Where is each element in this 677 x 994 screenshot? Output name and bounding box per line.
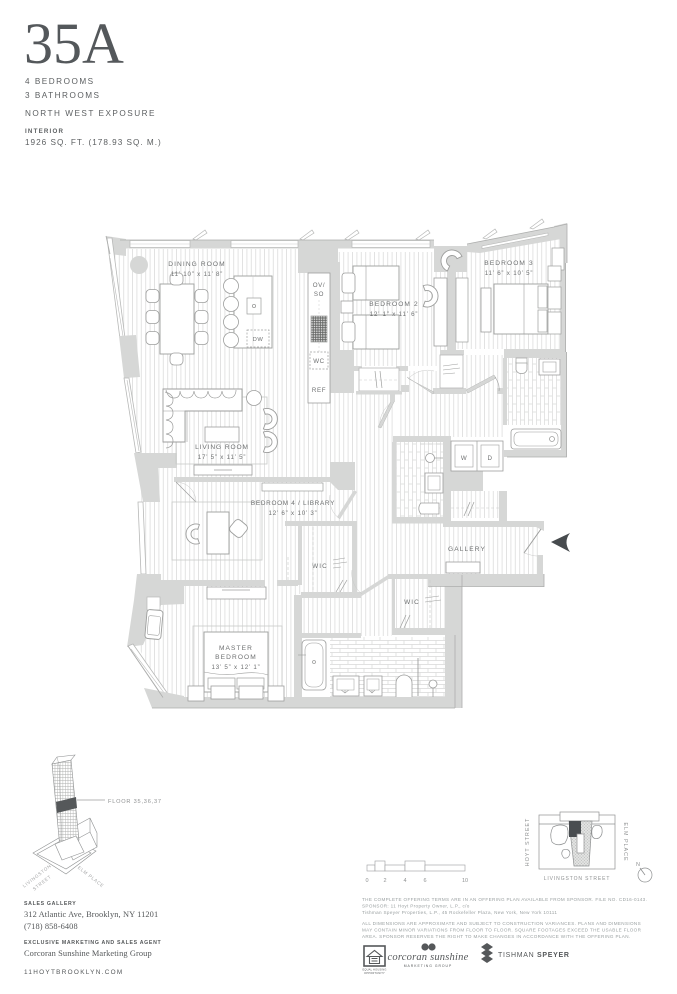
svg-text:12’ 1” x 11’ 6”: 12’ 1” x 11’ 6” (370, 311, 419, 318)
svg-text:6: 6 (423, 878, 426, 884)
svg-text:11HOYTBROOKLYN.COM: 11HOYTBROOKLYN.COM (24, 969, 124, 976)
svg-text:0: 0 (365, 878, 368, 884)
svg-text:D: D (488, 455, 493, 462)
svg-text:N: N (636, 862, 640, 868)
svg-text:MASTER: MASTER (219, 645, 253, 652)
svg-text:10: 10 (462, 878, 468, 884)
svg-text:3 BATHROOMS: 3 BATHROOMS (25, 91, 101, 100)
svg-text:NORTH WEST EXPOSURE: NORTH WEST EXPOSURE (25, 109, 156, 118)
svg-text:DW: DW (253, 337, 264, 343)
svg-text:Corcoran Sunshine Marketing Gr: Corcoran Sunshine Marketing Group (24, 949, 152, 958)
svg-text:2: 2 (383, 878, 386, 884)
svg-text:MAY CONTAIN MINOR VARIATIONS F: MAY CONTAIN MINOR VARIATIONS FROM FLOOR … (362, 928, 642, 933)
svg-text:SO: SO (314, 291, 324, 298)
svg-text:FLOOR 35,36,37: FLOOR 35,36,37 (108, 799, 162, 805)
svg-text:TISHMAN SPEYER: TISHMAN SPEYER (498, 952, 570, 959)
svg-text:THE COMPLETE OFFERING TERMS AR: THE COMPLETE OFFERING TERMS ARE IN AN OF… (362, 897, 647, 902)
svg-text:EXCLUSIVE MARKETING AND SALES: EXCLUSIVE MARKETING AND SALES AGENT (24, 940, 162, 946)
svg-text:W: W (461, 455, 467, 462)
svg-text:312 Atlantic Ave, Brooklyn, NY: 312 Atlantic Ave, Brooklyn, NY 11201 (24, 910, 158, 919)
svg-text:11’ 6” x 10’ 5”: 11’ 6” x 10’ 5” (485, 270, 534, 277)
svg-text:ELM PLACE: ELM PLACE (622, 822, 628, 861)
svg-text:OPPORTUNITY: OPPORTUNITY (364, 971, 385, 975)
svg-text:WIC: WIC (404, 599, 420, 606)
svg-text:INTERIOR: INTERIOR (25, 128, 64, 135)
svg-text:17’ 5” x 11’ 5”: 17’ 5” x 11’ 5” (198, 454, 247, 461)
svg-text:OV/: OV/ (313, 282, 325, 289)
svg-text:HOYT STREET: HOYT STREET (525, 818, 531, 867)
svg-text:MARKETING GROUP: MARKETING GROUP (404, 964, 453, 968)
svg-text:12’ 6” x 10’ 3”: 12’ 6” x 10’ 3” (268, 510, 317, 517)
svg-text:SALES GALLERY: SALES GALLERY (24, 901, 76, 907)
svg-text:LIVINGSTON STREET: LIVINGSTON STREET (544, 876, 611, 882)
svg-text:11’ 10” x 11’ 8”: 11’ 10” x 11’ 8” (171, 271, 223, 278)
svg-text:WIC: WIC (312, 563, 328, 570)
svg-text:BEDROOM 4 / LIBRARY: BEDROOM 4 / LIBRARY (251, 500, 335, 507)
svg-text:1926 SQ. FT. (178.93 SQ. M.): 1926 SQ. FT. (178.93 SQ. M.) (25, 138, 162, 147)
svg-text:35A: 35A (24, 11, 124, 76)
svg-text:corcoran sunshine: corcoran sunshine (388, 952, 469, 963)
svg-text:4: 4 (403, 878, 406, 884)
svg-text:4 BEDROOMS: 4 BEDROOMS (25, 77, 95, 86)
svg-text:BEDROOM 3: BEDROOM 3 (484, 260, 533, 267)
svg-text:LIVING ROOM: LIVING ROOM (195, 444, 249, 451)
svg-text:WC: WC (313, 358, 325, 365)
svg-text:AREA. SPONSOR RESERVES THE RIG: AREA. SPONSOR RESERVES THE RIGHT TO MAKE… (362, 934, 631, 939)
svg-text:DINING ROOM: DINING ROOM (168, 261, 226, 268)
svg-text:13’ 5” x 12’ 1”: 13’ 5” x 12’ 1” (211, 664, 260, 671)
svg-text:Tishman Speyer Properties, L.P: Tishman Speyer Properties, L.P., 45 Rock… (362, 910, 557, 915)
svg-text:ALL DIMENSIONS ARE APPROXIMATE: ALL DIMENSIONS ARE APPROXIMATE AND SUBJE… (362, 921, 641, 926)
svg-text:SPONSOR: 11 Hoyt Property Owne: SPONSOR: 11 Hoyt Property Owner, L.P., c… (362, 904, 470, 909)
svg-text:GALLERY: GALLERY (448, 546, 486, 553)
svg-text:BEDROOM 2: BEDROOM 2 (369, 301, 418, 308)
svg-text:REF: REF (312, 387, 326, 394)
svg-text:(718) 858-6408: (718) 858-6408 (24, 922, 78, 931)
svg-text:BEDROOM: BEDROOM (215, 654, 257, 661)
